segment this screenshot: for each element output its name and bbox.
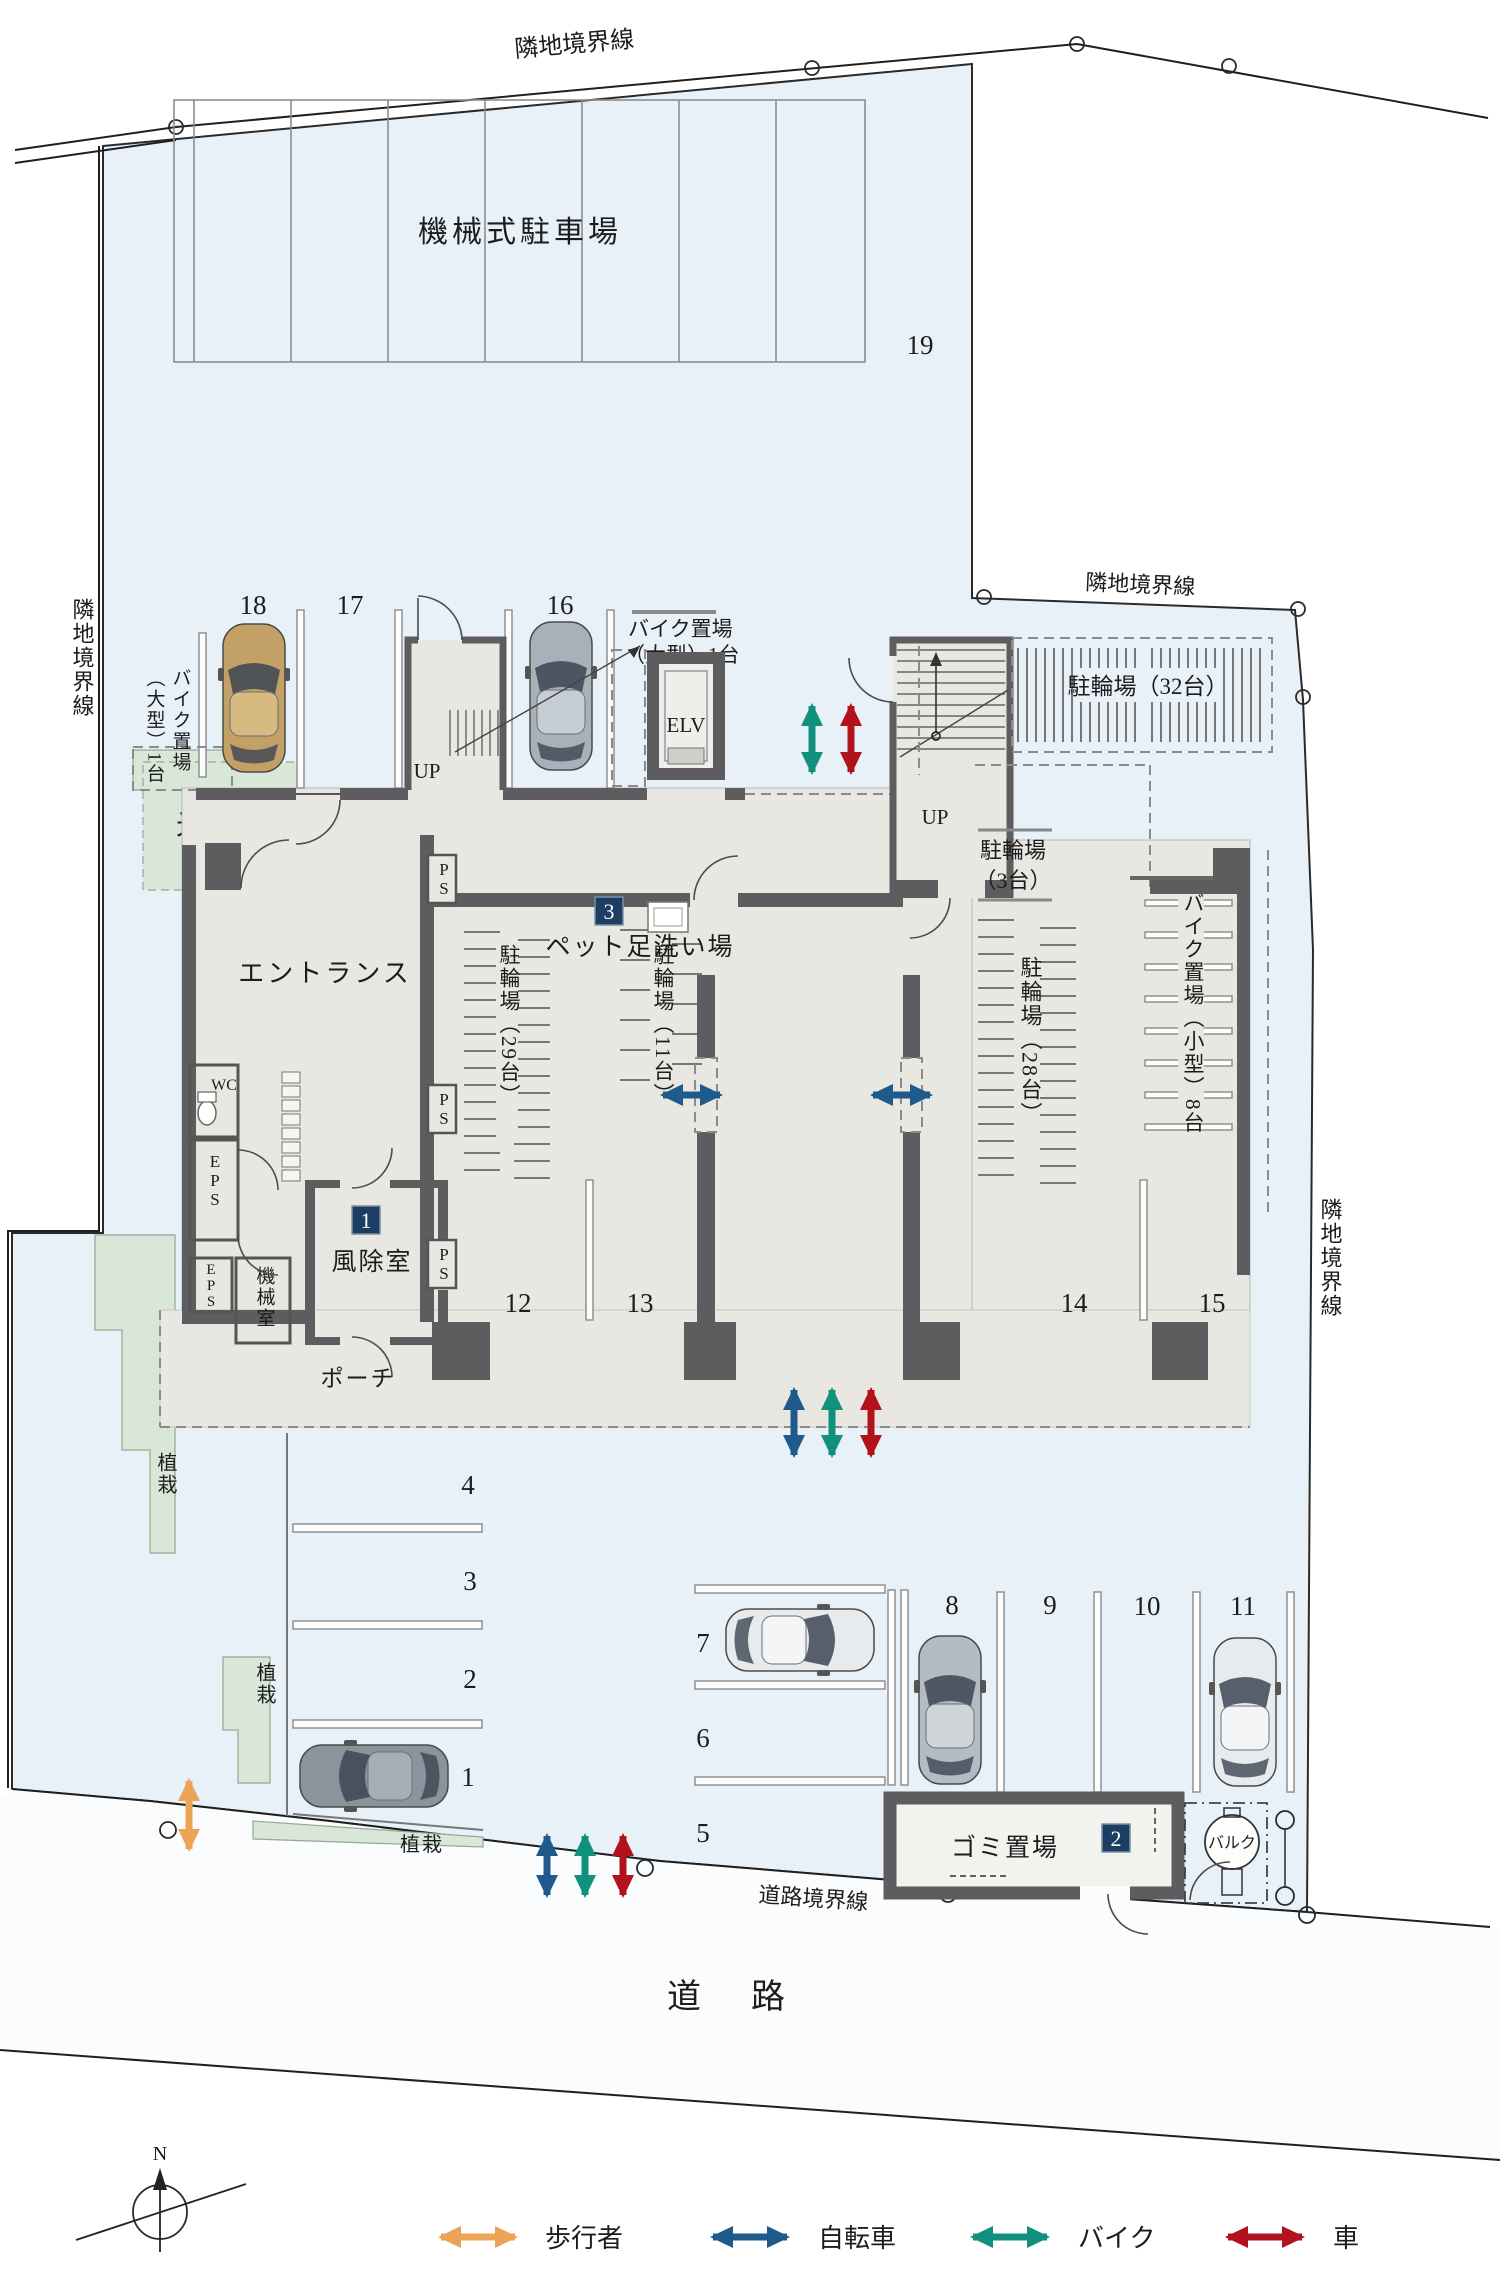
ps-label: PS [435,1245,454,1283]
garbage-door-opening [1080,1886,1130,1902]
wall [315,1337,340,1345]
stall-number-5: 5 [696,1818,710,1848]
ps-label: PS [435,860,454,898]
light-court-wall [205,843,241,890]
stall-number-2: 2 [463,1664,477,1694]
stall-divider [1287,1592,1294,1792]
elevator-label: ELV [667,713,706,737]
court-wall-2-lower [903,1132,920,1322]
bulk-label: バルク [1208,1834,1256,1852]
wall [305,1180,315,1345]
boundary-label-northeast: 隣地境界線 [1085,570,1196,600]
moto8-label: バイク置場（小型）8台 [1181,892,1205,1135]
court-wall-1-upper [697,975,715,1058]
stall-number-1: 1 [461,1762,475,1792]
stall-divider [297,610,304,788]
wall [438,1180,448,1240]
bike32-label: 駐輪場（32台） [1068,674,1229,699]
stall-divider [695,1681,885,1689]
up-label-east: UP [922,805,949,829]
stall-number-11: 11 [1230,1591,1256,1621]
boundary-label-east: 隣地境界線 [1318,1198,1343,1318]
stall-divider [1140,1180,1147,1320]
stall-divider [695,1585,885,1593]
stall-number-16: 16 [547,590,574,620]
stall-number-12: 12 [505,1288,532,1318]
legend-bicycle-label: 自転車 [818,2224,896,2253]
wall [315,1180,340,1188]
entrance-label: エントランス [238,959,411,988]
eps-label-2: EPS [203,1262,219,1310]
wall [503,788,647,800]
stall-divider [695,1777,885,1785]
site-plan-drawing: 道路境界線 道 路 隣地境界線 隣地境界線 隣地境界線 隣地境界線 機械式駐車場… [0,0,1500,2270]
stall-divider [586,1180,593,1320]
car-stall-16 [525,622,597,770]
planting-label-1: 植栽 [154,1452,177,1496]
stall-divider [199,633,206,777]
pet-wash-label: ペット足洗い場 [545,933,734,961]
eps-label-1: EPS [206,1152,225,1209]
badge-2-number: 2 [1111,1826,1122,1851]
stall-number-14: 14 [1061,1288,1089,1318]
stall-number-17: 17 [337,590,364,620]
stall-divider [888,1590,895,1785]
pet-area-wall-b [738,893,903,907]
stall-number-19: 19 [907,330,934,360]
porch-label: ポーチ [321,1366,396,1391]
elevator-shaft: ELV [647,652,725,780]
moto-large-west-label-1: バイク置場 [170,668,192,773]
moto-large-note-1: バイク置場 [628,617,733,641]
compass-north-label: N [153,2143,167,2165]
legend-moto-label: バイク [1078,2224,1155,2253]
pillar [903,1322,960,1380]
road-label: 道 路 [667,1978,793,2016]
stall-number-7: 7 [696,1628,710,1658]
site-plan-page: 道路境界線 道 路 隣地境界線 隣地境界線 隣地境界線 隣地境界線 機械式駐車場… [0,0,1500,2270]
building-main-slab [182,788,972,1310]
bike3-label-2: （3台） [974,868,1051,893]
compass-north-arrow-icon [153,2168,167,2190]
garbage-label: ゴミ置場 [951,1834,1059,1862]
wall [340,788,408,800]
planting-label-2: 植栽 [253,1662,276,1706]
boundary-label-north: 隣地境界線 [513,26,635,63]
badge-1-number: 1 [361,1208,372,1233]
moto-large-west-label-2: （大型）1台 [144,668,166,785]
stall-divider [395,610,402,788]
car-stall-8 [914,1636,986,1784]
east-corner-wall [1213,848,1250,894]
stall-number-8: 8 [945,1590,959,1620]
wall [390,1180,438,1188]
stall-number-4: 4 [461,1470,475,1500]
legend-pedestrian-label: 歩行者 [545,2224,623,2253]
elevator-machine [668,748,704,764]
car-stall-1 [300,1740,448,1812]
court-wall-1-lower [697,1132,715,1322]
planting-label-3: 植栽 [400,1833,444,1856]
wall [438,1290,448,1345]
stall-divider [1094,1592,1101,1792]
pillar [684,1322,736,1380]
windbreak-label: 風除室 [331,1248,412,1276]
wall [196,788,296,800]
bike3-label-1: 駐輪場 [980,838,1046,863]
wc-label: WC [211,1077,237,1094]
stall-number-18: 18 [240,590,267,620]
bike28-label: 駐輪場（28台） [1018,956,1043,1126]
legend-car-label: 車 [1333,2224,1359,2253]
compass: N [76,2143,246,2252]
stall-number-9: 9 [1043,1590,1057,1620]
stall-divider [293,1720,482,1728]
ps-label: PS [435,1090,454,1128]
stall-divider [997,1592,1004,1792]
bike29-label: 駐輪場（29台） [497,944,521,1107]
flow-legend: 歩行者 自転車 バイク 車 [441,2224,1359,2253]
stall-number-3: 3 [463,1566,477,1596]
toilet-icon [198,1101,216,1125]
stall-number-15: 15 [1199,1288,1226,1318]
stall-divider [1193,1592,1200,1792]
boundary-label-west: 隣地境界線 [70,598,95,718]
car-stall-7 [726,1604,874,1676]
building-east-slab [972,840,1250,1310]
wall [725,788,745,800]
east-section-top-wall [1150,880,1213,894]
car-stall-11 [1209,1638,1281,1786]
car-stall-18 [218,624,290,772]
stall-divider [901,1590,908,1785]
wall [390,1337,438,1345]
stall-number-13: 13 [627,1288,654,1318]
badge-3-number: 3 [604,899,615,924]
court-wall-2-upper [903,975,920,1058]
pillar [1152,1322,1208,1380]
stall-divider [293,1621,482,1629]
east-wall [1237,894,1250,1275]
stall-number-6: 6 [696,1723,710,1753]
stall-divider [293,1524,482,1532]
stall-number-10: 10 [1134,1591,1161,1621]
up-label-west: UP [414,759,441,783]
mechanical-parking-label: 機械式駐車場 [418,216,622,249]
bike11-label: 駐輪場（11台） [651,944,675,1106]
compass-cross-line [76,2184,246,2240]
